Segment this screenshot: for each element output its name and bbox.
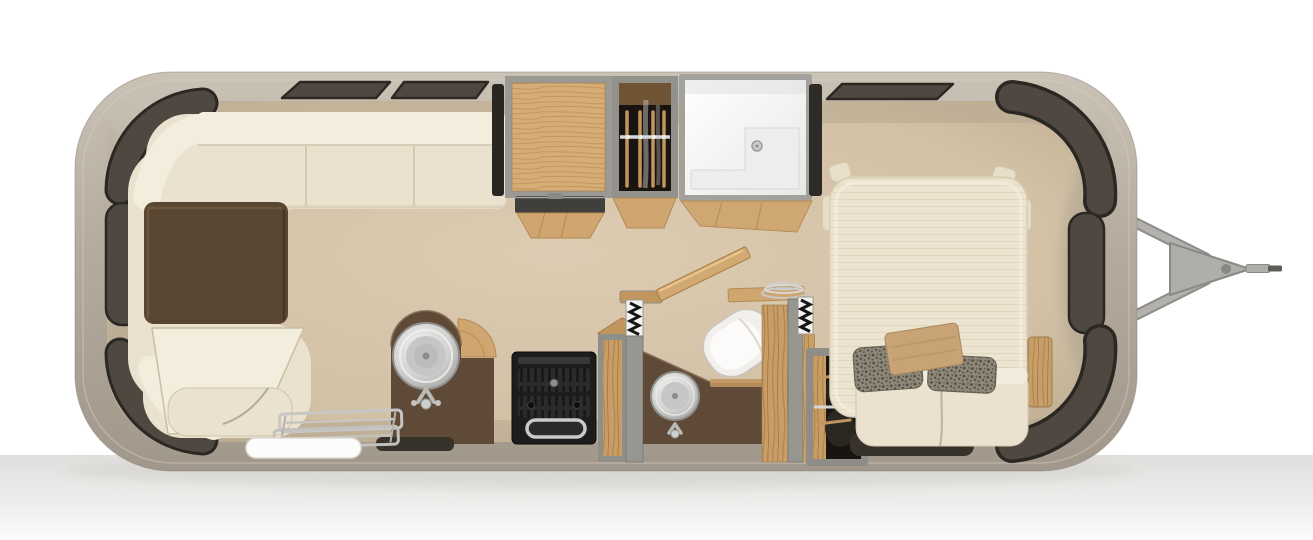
window-front-middle-icon [1069, 213, 1104, 333]
hitch-tongue [1246, 265, 1270, 273]
bath-wall-left [626, 336, 643, 462]
shower-glass-door [809, 84, 822, 196]
floorplan-image [0, 0, 1313, 540]
lounge-bench-cushion [168, 388, 292, 436]
wood-pillar [762, 305, 788, 462]
burner-knob-icon [550, 379, 558, 387]
cabinet-skirt-1 [517, 213, 604, 238]
wood-cabinet [512, 83, 605, 191]
lounge-table [144, 202, 288, 324]
vanity-trim [710, 379, 764, 387]
pantry-cabinet [603, 340, 622, 456]
entry-door [246, 438, 361, 458]
tv-panel [492, 84, 504, 196]
hitch-tip [1268, 266, 1282, 272]
window-lounge-2-icon [392, 82, 488, 98]
bedside-cabinet [1028, 337, 1052, 407]
window-lounge-1-icon [282, 82, 390, 98]
hitch-jack [1221, 264, 1231, 274]
floorplan-svg [0, 0, 1313, 540]
bedroom [823, 161, 1052, 456]
street-side-cabinets [505, 74, 822, 238]
oven-handle-icon [527, 420, 585, 437]
window-bedroom-icon [827, 84, 953, 99]
latch-handle-icon [547, 193, 563, 199]
